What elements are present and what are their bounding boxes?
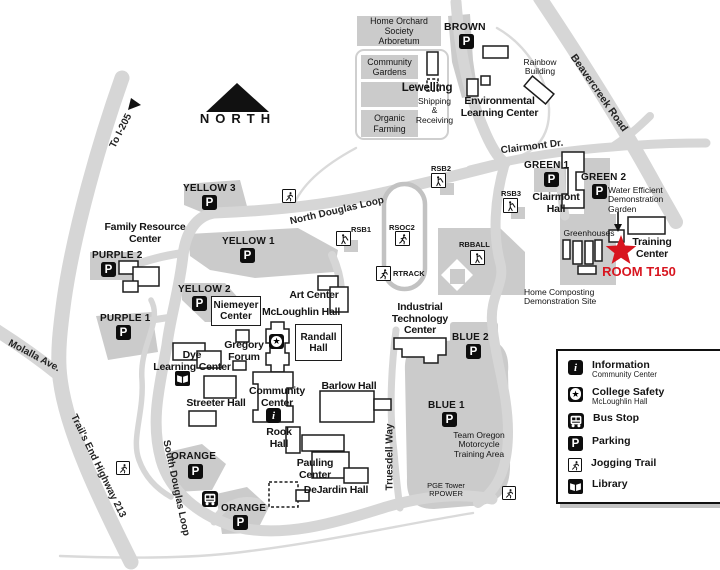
community-gardens: Community Gardens [361, 55, 418, 79]
niemeyer-center: Niemeyer Center [211, 296, 261, 326]
parking-icon-blue2: P [466, 344, 481, 359]
legend-label: Bus Stop [593, 412, 639, 424]
parking-icon-orange-east: P [233, 515, 248, 530]
information-glyph: i [574, 362, 577, 374]
college-safety-icon: ★ [269, 334, 284, 349]
shipping-receiving-label: Shipping & Receiving [407, 97, 462, 125]
softball-field-icon-rsb2 [431, 173, 446, 188]
information-icon: i [568, 360, 583, 375]
legend-item-library: Library [568, 478, 714, 494]
parking-glyph: P [548, 174, 556, 186]
clairmont-hall-label: Clairmont Hall [531, 192, 581, 215]
parking-glyph: P [244, 250, 252, 262]
environmental-learning-center-label: Environmental Learning Center [457, 96, 542, 119]
legend-label: Jogging Trail [591, 457, 656, 469]
safety-star-glyph: ★ [271, 336, 283, 348]
information-glyph: i [266, 408, 281, 423]
parking-label-purple2: PURPLE 2 [92, 250, 143, 261]
jogging-trail-icon-west [116, 461, 130, 475]
streeter-hall-label: Streeter Hall [184, 398, 248, 410]
parking-glyph: P [463, 36, 471, 48]
lewelling-label: Lewelling [399, 82, 455, 95]
legend-item-jogging-trail: Jogging Trail [568, 457, 714, 472]
greenhouses-label: Greenhouses [563, 229, 615, 238]
parking-glyph: P [237, 517, 245, 529]
parking-glyph: P [470, 346, 478, 358]
rook-hall-label: Rook Hall [261, 427, 297, 450]
baseball-field-icon-rbball [470, 250, 485, 265]
parking-icon: P [568, 436, 583, 451]
parking-icon-green2: P [592, 184, 607, 199]
softball-field-icon-rsb3 [503, 198, 518, 213]
legend-label: Library [592, 478, 628, 490]
bus-stop-icon [202, 491, 218, 507]
jogging-trail-icon-south [502, 486, 516, 500]
college-safety-icon: ★ [568, 387, 583, 402]
north-arrow-icon [206, 83, 269, 112]
field-label-rsb1: RSB1 [351, 225, 371, 234]
parking-label-blue1: BLUE 1 [428, 400, 465, 411]
parking-glyph: P [120, 327, 128, 339]
parking-icon-green1: P [544, 172, 559, 187]
rainbow-building-label: Rainbow Building [518, 58, 562, 77]
parking-glyph: P [105, 264, 113, 276]
north-label: NORTH [196, 112, 280, 126]
parking-icon-purple1: P [116, 325, 131, 340]
legend: i Information Community Center ★ College… [556, 349, 720, 504]
library-icon [568, 479, 583, 494]
campus-map: NORTH To I-205 Home Orchard Society Arbo… [0, 0, 720, 570]
parking-glyph: P [206, 197, 214, 209]
randall-hall: Randall Hall [295, 324, 342, 361]
mcloughlin-hall-label: McLoughlin Hall [256, 307, 346, 319]
parking-icon-purple2: P [101, 262, 116, 277]
parking-label-green1: GREEN 1 [524, 160, 569, 171]
parking-label-yellow2: YELLOW 2 [178, 284, 231, 295]
road-label-truesdell: Truesdell Way [385, 424, 396, 491]
home-orchard-arboretum: Home Orchard Society Arboretum [357, 16, 441, 46]
parking-label-purple1: PURPLE 1 [100, 313, 151, 324]
safety-star-glyph: ★ [570, 388, 582, 400]
dye-learning-center-label: Dye Learning Center [152, 350, 232, 373]
parking-icon-yellow1: P [240, 248, 255, 263]
parking-icon-yellow3: P [202, 195, 217, 210]
legend-item-college-safety: ★ College Safety McLoughlin Hall [568, 386, 714, 407]
i205-arrow-icon [128, 98, 141, 110]
training-center-label: Training Center [629, 237, 675, 260]
parking-label-yellow1: YELLOW 1 [222, 236, 275, 247]
pge-tower-label: PGE Tower RPOWER [425, 482, 467, 499]
parking-label-orange-east: ORANGE [221, 503, 266, 514]
parking-label-brown: BROWN [444, 21, 486, 33]
community-center-label: Community Center [249, 386, 305, 409]
family-resource-label: Family Resource Center [104, 222, 186, 245]
field-label-rbball: RBBALL [459, 240, 490, 249]
parking-icon-blue1: P [442, 412, 457, 427]
legend-item-information: i Information Community Center [568, 359, 714, 380]
water-garden-label: Water Efficient Demonstration Garden [608, 186, 672, 214]
pauling-center-label: Pauling Center [291, 458, 339, 481]
library-icon [175, 371, 190, 386]
parking-label-green2: GREEN 2 [581, 172, 626, 183]
industrial-technology-label: Industrial Technology Center [391, 302, 449, 337]
field-label-rsb2: RSB2 [431, 164, 451, 173]
parking-label-yellow3: YELLOW 3 [183, 183, 236, 194]
parking-label-blue2: BLUE 2 [452, 332, 489, 343]
track-icon-rtrack [376, 266, 391, 281]
field-label-rtrack: RTRACK [393, 269, 425, 278]
team-oregon-label: Team Oregon Motorcycle Training Area [448, 431, 510, 459]
dejardin-hall-label: DeJardin Hall [303, 485, 369, 497]
field-label-rsb3: RSB3 [501, 189, 521, 198]
parking-glyph: P [446, 414, 454, 426]
home-composting-label: Home Composting Demonstration Site [524, 288, 616, 307]
jogging-trail-icon [568, 458, 582, 472]
parking-icon-brown: P [459, 34, 474, 49]
barlow-hall-label: Barlow Hall [320, 381, 378, 393]
legend-sublabel: Community Center [592, 371, 657, 380]
parking-glyph: P [192, 466, 200, 478]
bus-stop-icon [568, 413, 584, 429]
soccer-field-icon-rsoc2 [395, 231, 410, 246]
softball-field-icon-rsb1 [336, 231, 351, 246]
legend-sublabel: McLoughlin Hall [592, 398, 664, 407]
parking-icon-orange-south: P [188, 464, 203, 479]
jogging-trail-icon-north [282, 189, 296, 203]
legend-item-bus-stop: Bus Stop [568, 412, 714, 429]
parking-icon-yellow2: P [192, 296, 207, 311]
information-icon: i [266, 408, 281, 423]
parking-glyph: P [596, 186, 604, 198]
legend-item-parking: P Parking [568, 435, 714, 451]
legend-label: College Safety [592, 386, 664, 398]
legend-label: Parking [592, 435, 631, 447]
parking-label-orange-south: ORANGE [171, 451, 216, 462]
parking-glyph: P [196, 298, 204, 310]
room-t150-label: ROOM T150 [601, 265, 677, 279]
art-center-label: Art Center [288, 290, 340, 302]
parking-glyph: P [572, 438, 580, 450]
